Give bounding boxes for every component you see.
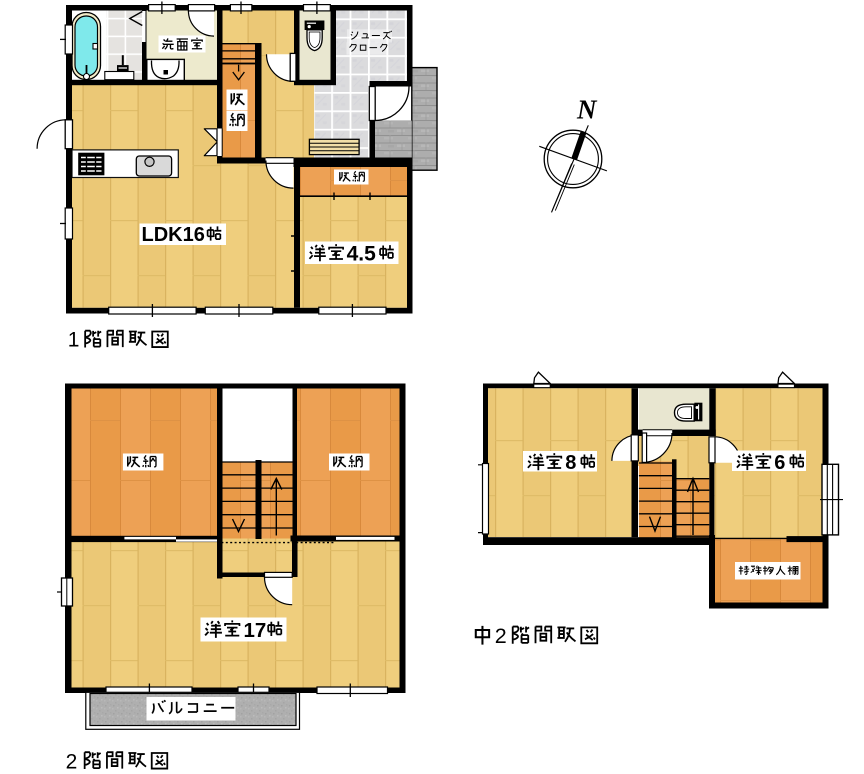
svg-text:4.5: 4.5 bbox=[347, 243, 377, 266]
svg-text:2: 2 bbox=[66, 751, 78, 774]
svg-text:8: 8 bbox=[565, 452, 576, 474]
svg-text:6: 6 bbox=[774, 452, 785, 474]
svg-text:LDK16: LDK16 bbox=[142, 224, 205, 246]
svg-text:1: 1 bbox=[68, 329, 80, 352]
svg-text:2: 2 bbox=[495, 624, 507, 648]
svg-text:N: N bbox=[576, 95, 598, 125]
svg-text:17: 17 bbox=[244, 619, 267, 642]
